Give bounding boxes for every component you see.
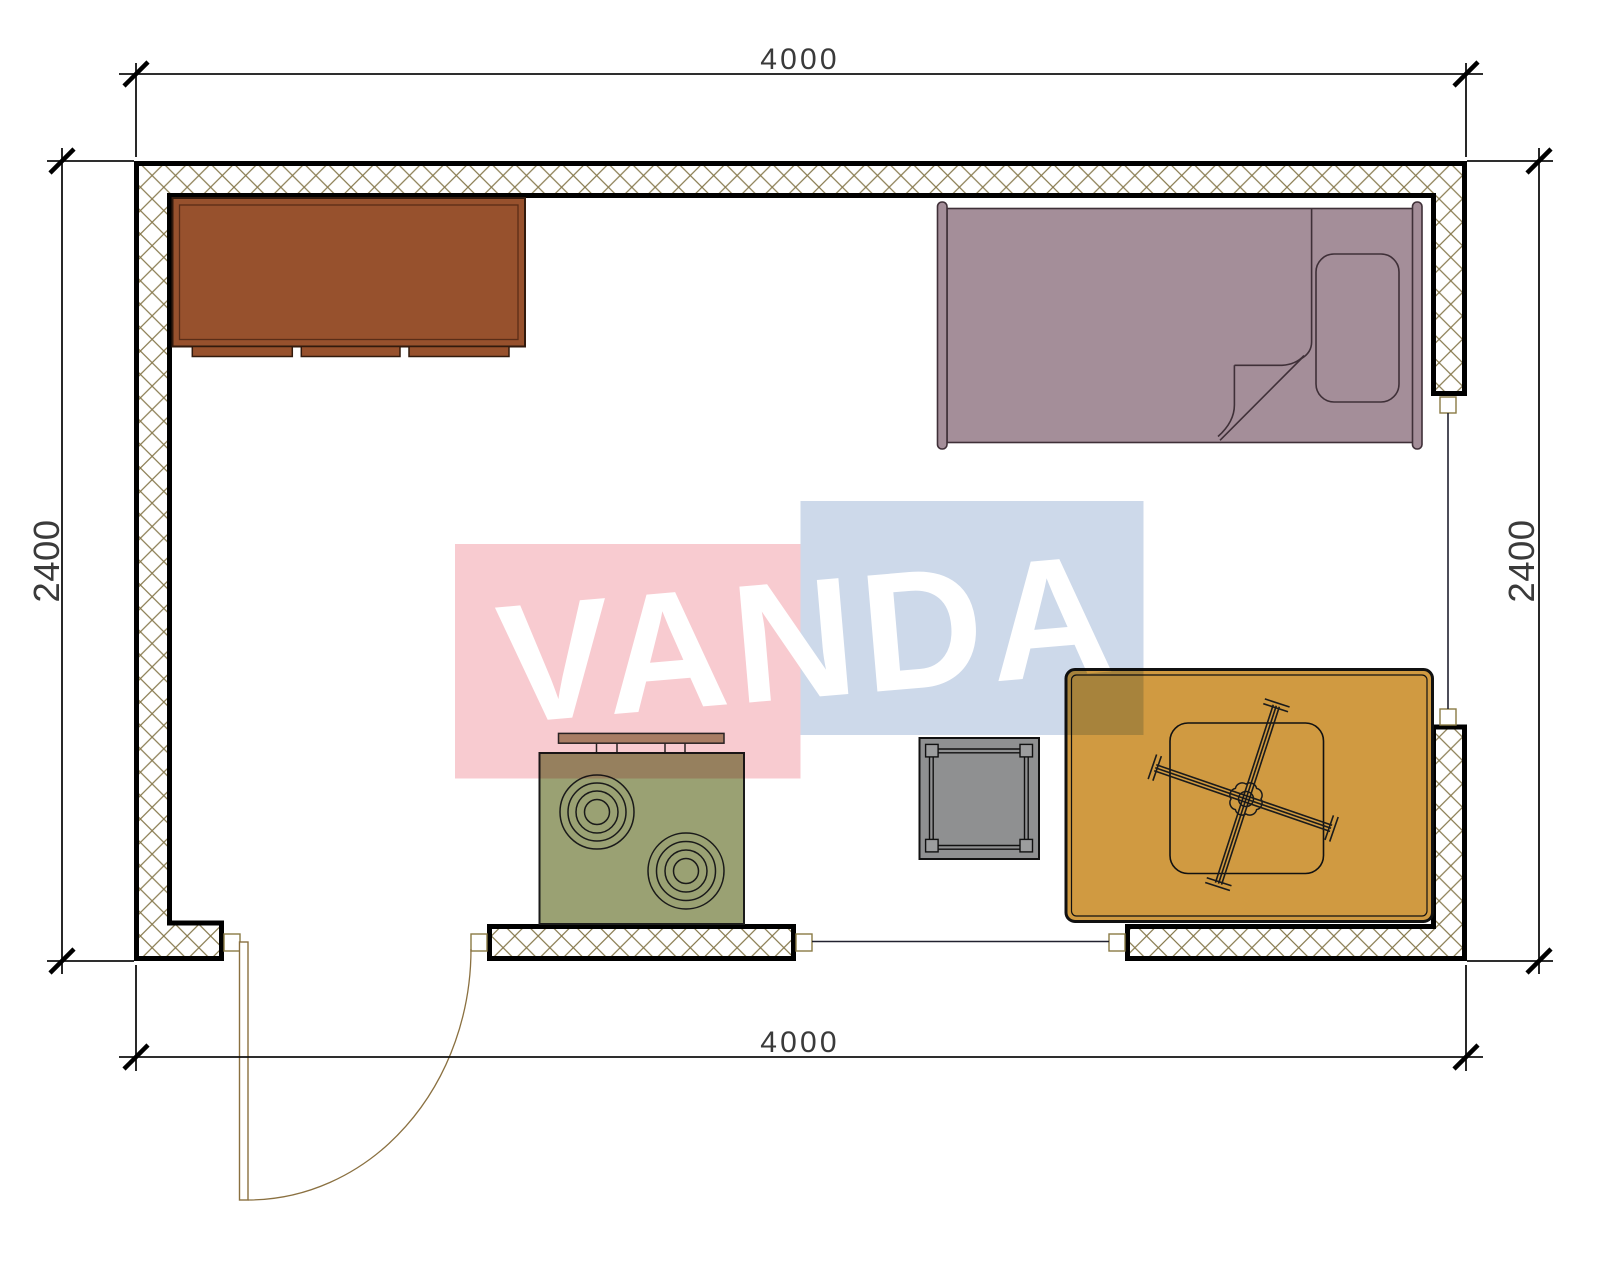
svg-text:4000: 4000 [760,43,840,76]
svg-text:4000: 4000 [760,1026,840,1059]
svg-text:2400: 2400 [1501,519,1542,602]
svg-text:2400: 2400 [26,519,67,602]
